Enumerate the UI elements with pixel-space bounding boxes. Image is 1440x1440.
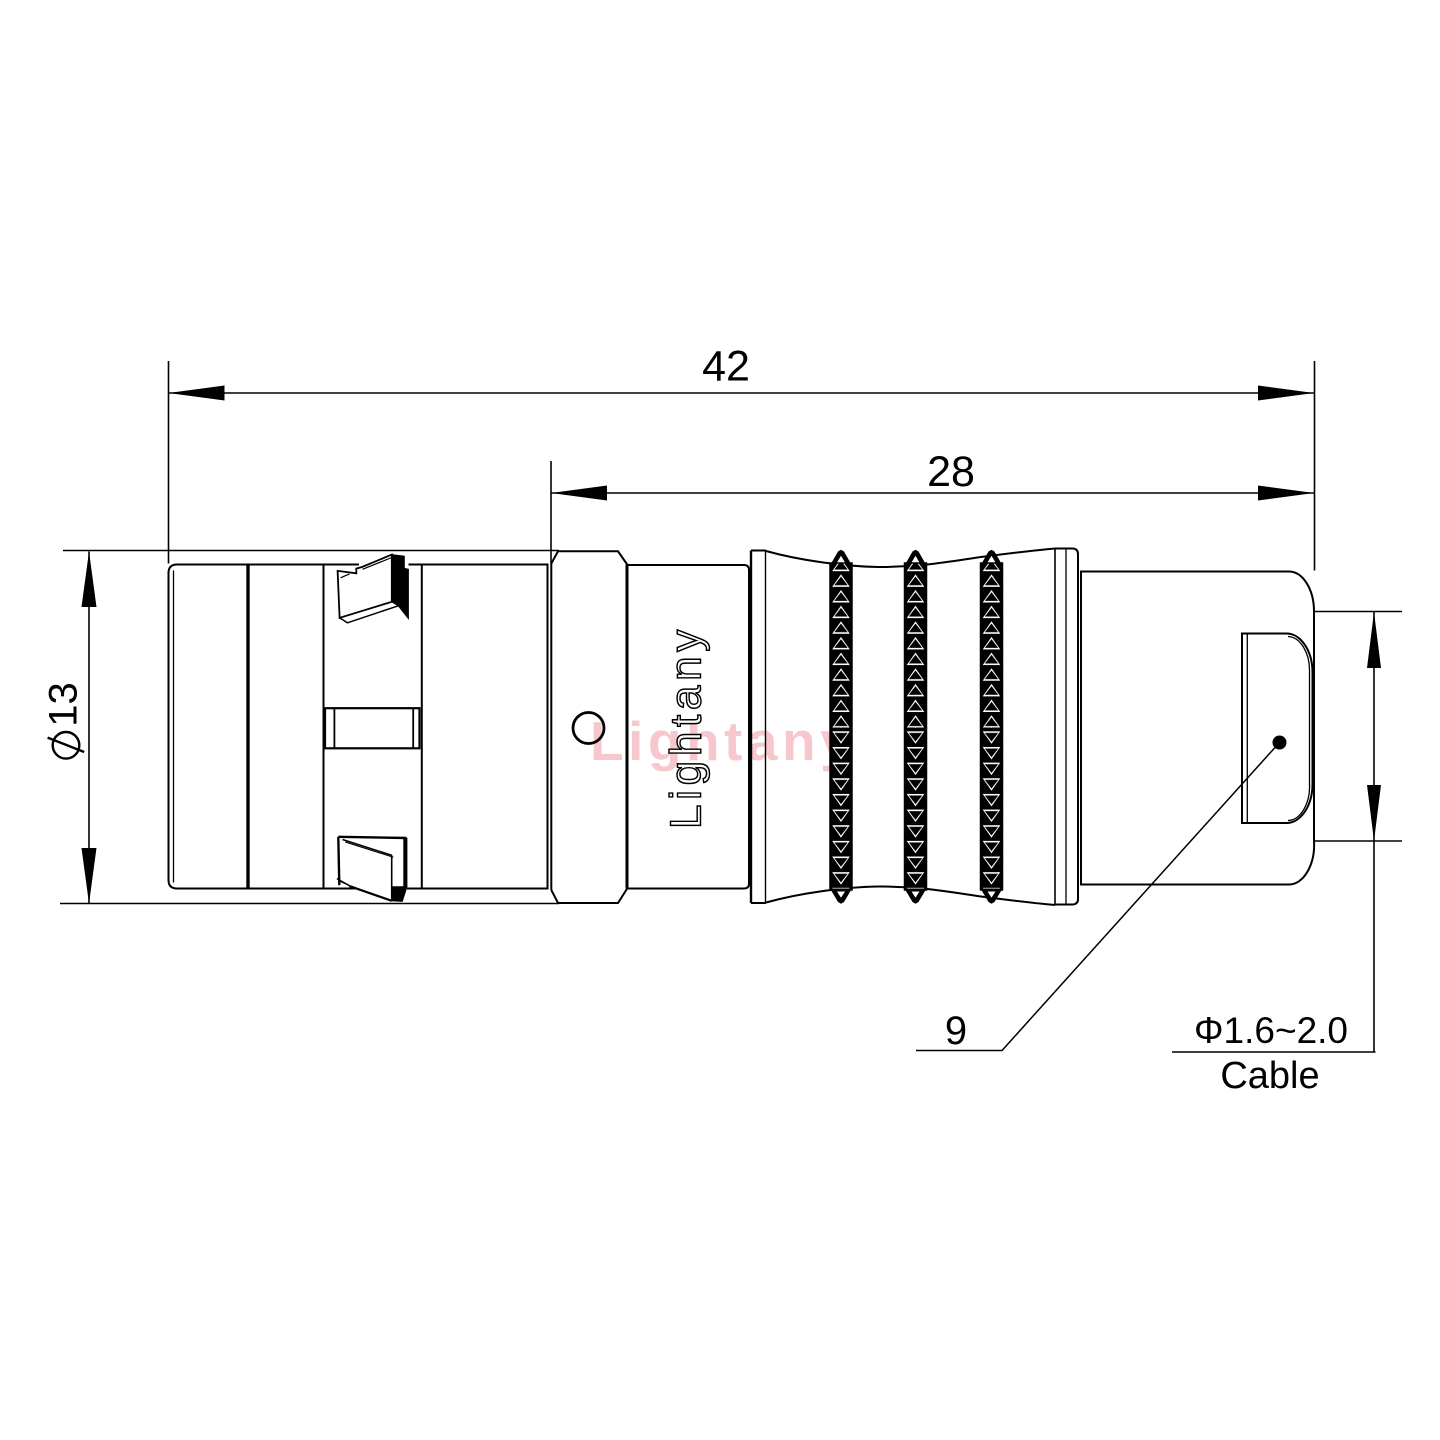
svg-text:28: 28 [927,448,975,496]
svg-text:Lightany: Lightany [590,710,855,772]
svg-text:42: 42 [702,343,750,391]
svg-text:Cable: Cable [1220,1055,1319,1097]
svg-text:9: 9 [945,1009,967,1053]
svg-text:Lightany: Lightany [662,625,711,829]
svg-text:Φ1.6~2.0: Φ1.6~2.0 [1194,1010,1348,1051]
svg-text:13: 13 [42,682,86,727]
